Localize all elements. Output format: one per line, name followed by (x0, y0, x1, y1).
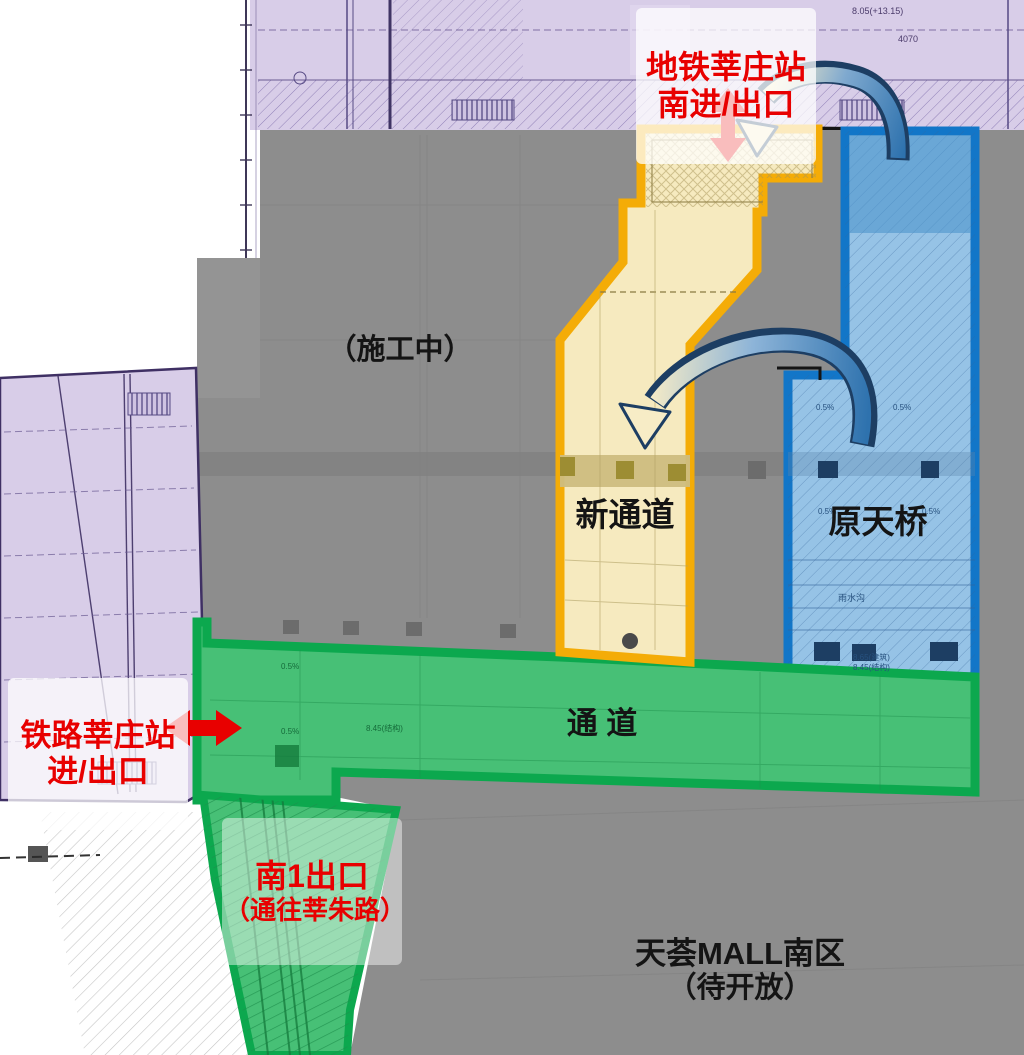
annotation-slope: 0.5% (816, 403, 834, 412)
label-railway-station-exit: 铁路莘庄站 进/出口 (8, 678, 188, 830)
annotation-level: 8.45(结构) (853, 662, 890, 672)
label-passage-text: 通 道 (567, 706, 638, 741)
label-railway-line1: 铁路莘庄站 (21, 718, 176, 753)
annotation-dim: 4070 (898, 34, 918, 44)
label-metro-line2: 南进/出口 (642, 86, 810, 123)
label-under-construction-text: （施工中） (327, 334, 472, 366)
label-old-bridge: 原天桥 (823, 503, 933, 541)
label-new-passage: 新通道 (570, 496, 680, 534)
label-new-passage-text: 新通道 (576, 496, 675, 533)
annotation-gutter: 雨水沟 (838, 592, 865, 603)
annotation-slope: 0.5% (281, 662, 299, 671)
label-south-exit-line1: 南1出口 (255, 858, 369, 894)
annotation-level: 8.65(建筑) (853, 652, 890, 662)
label-mall-line2: （待开放） (622, 972, 858, 1006)
label-old-bridge-text: 原天桥 (829, 503, 928, 540)
annotation-slope: 0.5% (893, 403, 911, 412)
annotation-slope: 0.5% (281, 727, 299, 736)
label-south-exit-1: 南1出口 （通往莘朱路） (222, 818, 402, 965)
label-railway-line2: 进/出口 (14, 754, 182, 790)
label-metro-station-exit: 地铁莘庄站 南进/出口 (636, 8, 816, 164)
label-mall-south-zone: 天荟MALL南区 （待开放） (622, 900, 858, 1041)
label-south-exit-line2: （通往莘朱路） (224, 895, 400, 925)
annotation-level: 8.45(结构) (366, 723, 403, 733)
site-plan-canvas: 8.05(+13.15) 4070 0.5% 0.5% 0.5% 0.5% 雨水… (0, 0, 1024, 1055)
annotation-level: 8.05(+13.15) (852, 6, 903, 16)
label-metro-line1: 地铁莘庄站 (646, 49, 806, 85)
label-mall-line1: 天荟MALL南区 (635, 936, 845, 971)
label-under-construction: （施工中） (322, 334, 478, 368)
label-passage: 通 道 (552, 706, 652, 742)
